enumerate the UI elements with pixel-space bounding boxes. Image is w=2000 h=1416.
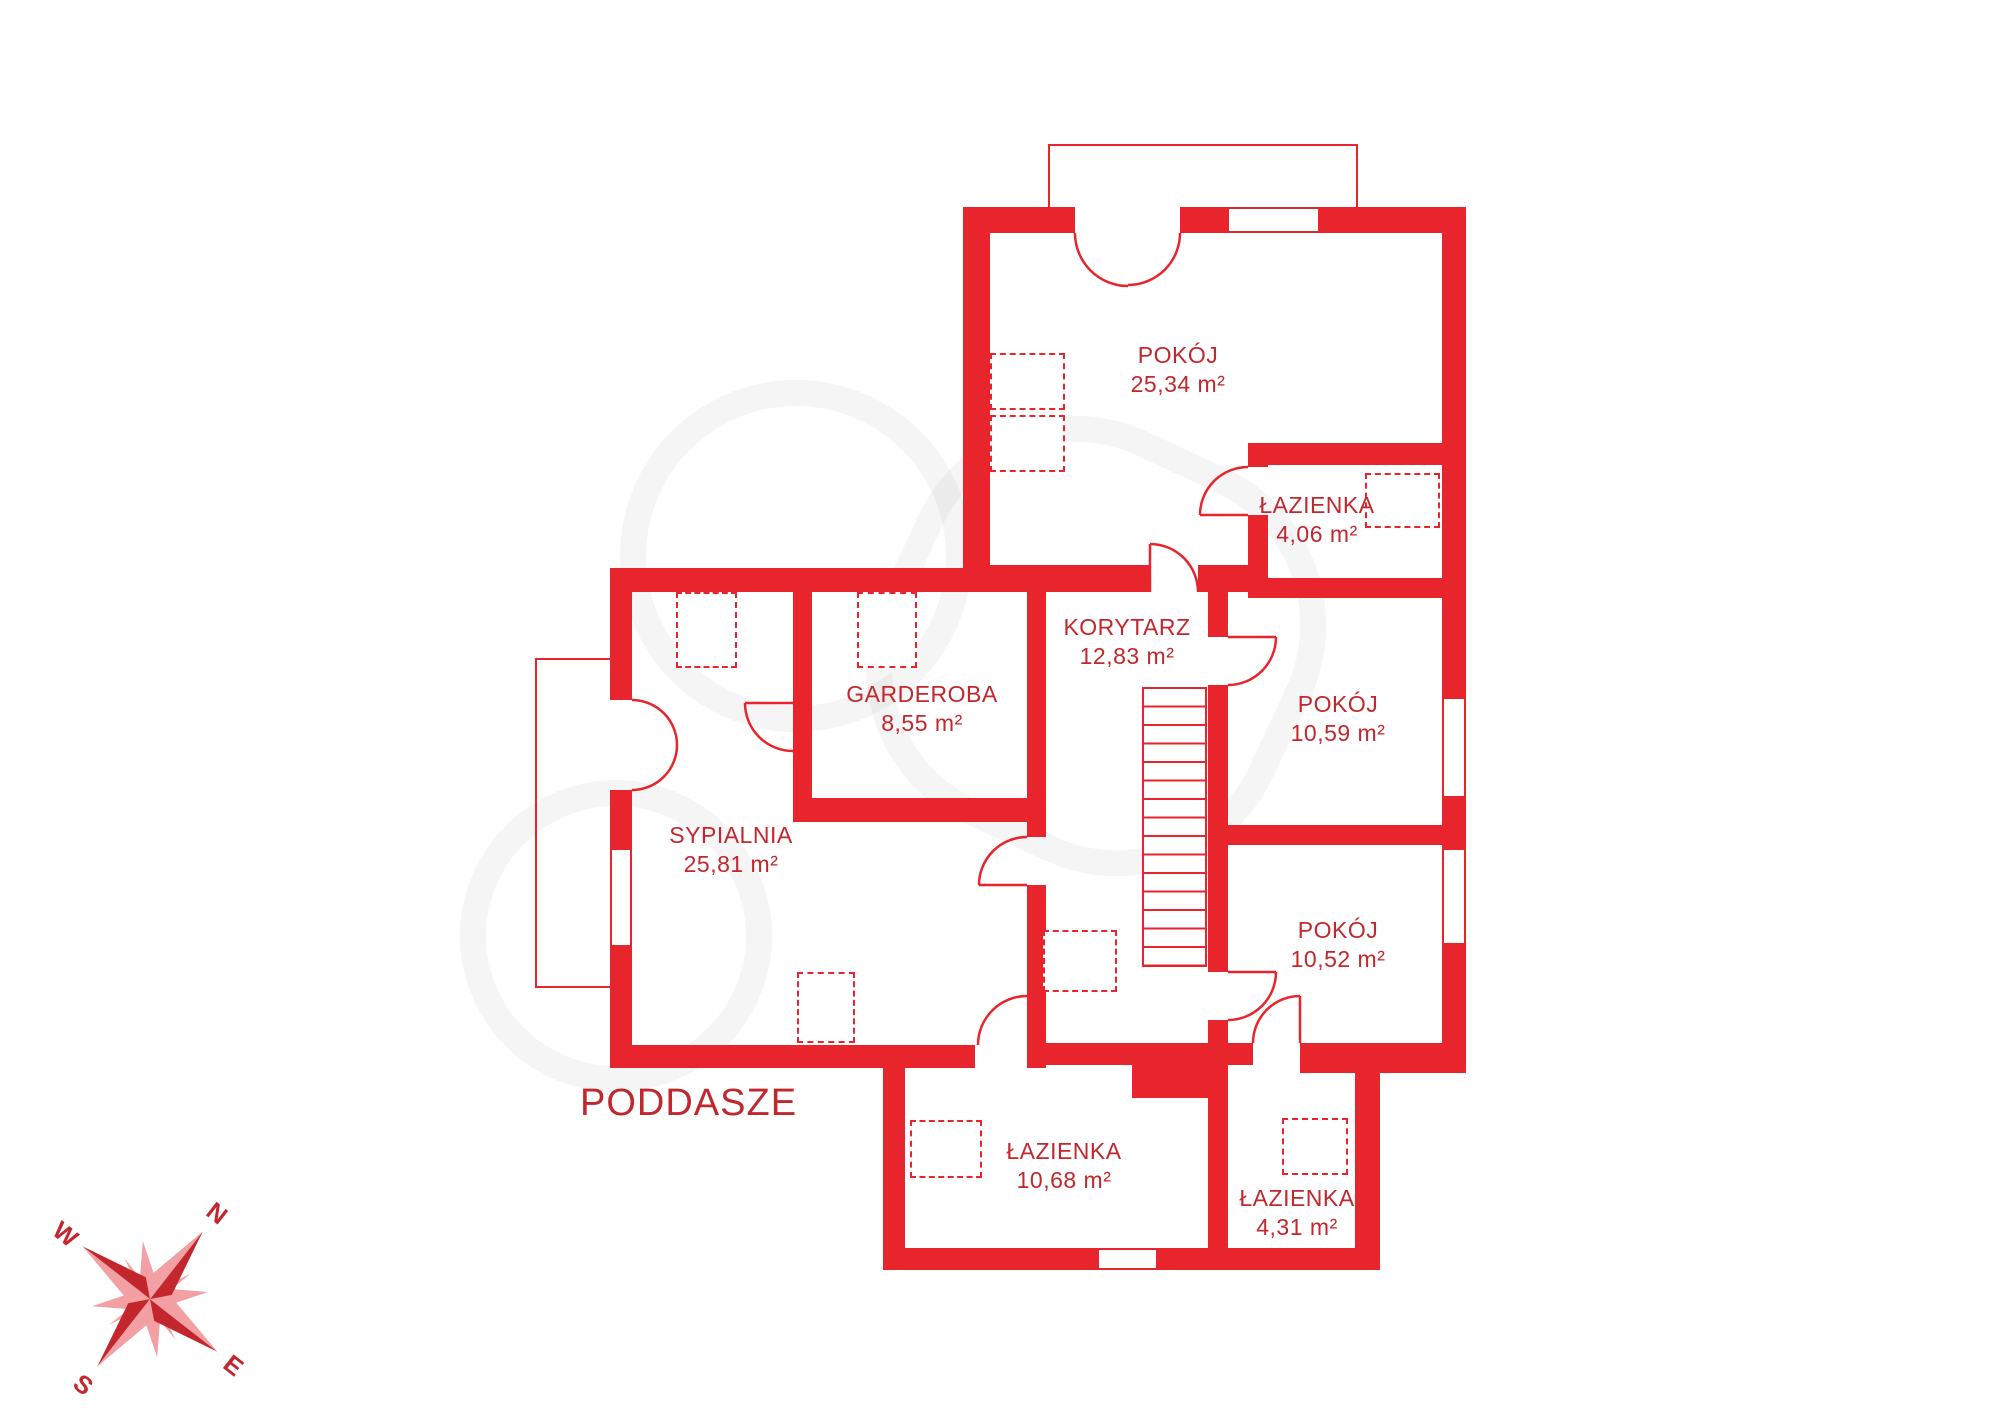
door-arc: [1253, 996, 1300, 1043]
room-label: POKÓJ 25,34 m²: [1048, 341, 1308, 399]
room-name: ŁAZIENKA: [1167, 1184, 1427, 1213]
compass-letter-e: E: [218, 1350, 248, 1382]
furniture-outline: [797, 972, 855, 1043]
room-name: SYPIALNIA: [601, 821, 861, 850]
wall: [1248, 578, 1442, 598]
room-name: POKÓJ: [1208, 916, 1468, 945]
room-area: 10,59 m²: [1208, 719, 1468, 748]
room-area: 8,55 m²: [792, 709, 1052, 738]
room-name: POKÓJ: [1208, 690, 1468, 719]
wall: [1442, 207, 1466, 697]
compass-letter-n: N: [201, 1197, 233, 1230]
wall: [610, 568, 632, 700]
room-area: 12,83 m²: [997, 642, 1257, 671]
wall: [1028, 1043, 1253, 1065]
room-area: 25,34 m²: [1048, 370, 1308, 399]
wall: [1180, 207, 1227, 233]
room-name: ŁAZIENKA: [1187, 491, 1447, 520]
window: [1227, 207, 1320, 233]
window: [1097, 1248, 1158, 1270]
room-label: POKÓJ 10,59 m²: [1208, 690, 1468, 748]
room-area: 10,68 m²: [934, 1166, 1194, 1195]
wall: [883, 1058, 905, 1270]
room-name: KORYTARZ: [997, 613, 1257, 642]
room-label: ŁAZIENKA 4,06 m²: [1187, 491, 1447, 549]
wall: [963, 207, 990, 592]
floor-plan: POKÓJ 25,34 m² ŁAZIENKA 4,06 m² KORYTARZ…: [0, 0, 2000, 1416]
room-name: GARDEROBA: [792, 680, 1052, 709]
room-area: 4,31 m²: [1167, 1213, 1427, 1242]
room-name: ŁAZIENKA: [934, 1137, 1194, 1166]
compass-letter-s: S: [68, 1369, 98, 1401]
furniture-outline: [1282, 1118, 1348, 1175]
wall: [1132, 1065, 1228, 1098]
door-arc: [632, 700, 677, 745]
wall: [1208, 1020, 1228, 1045]
door-arc: [1075, 233, 1128, 286]
wall: [1158, 1248, 1380, 1270]
wall: [1300, 1043, 1466, 1073]
room-label: ŁAZIENKA 10,68 m²: [934, 1137, 1194, 1195]
compass-letter-w: W: [47, 1216, 83, 1253]
floor-title: PODDASZE: [580, 1082, 797, 1125]
furniture-outline: [1043, 930, 1117, 992]
terrace-outline: [535, 658, 611, 988]
wall: [610, 568, 990, 592]
room-label: ŁAZIENKA 4,31 m²: [1167, 1184, 1427, 1242]
room-name: POKÓJ: [1048, 341, 1308, 370]
stairs: [1142, 687, 1207, 967]
room-area: 25,81 m²: [601, 850, 861, 879]
room-label: SYPIALNIA 25,81 m²: [601, 821, 861, 879]
door-arc: [1228, 972, 1276, 1020]
wall: [1442, 798, 1466, 848]
compass-rose-icon: N E S W: [35, 1182, 265, 1412]
wall: [883, 1248, 1097, 1270]
dormer-outline: [1048, 144, 1358, 209]
room-area: 10,52 m²: [1208, 945, 1468, 974]
wall: [990, 565, 1150, 592]
door-arc: [1128, 233, 1180, 285]
wall: [1228, 825, 1442, 845]
door-arc: [978, 996, 1027, 1045]
furniture-outline: [857, 592, 917, 668]
furniture-outline: [990, 415, 1065, 472]
room-label: KORYTARZ 12,83 m²: [997, 613, 1257, 671]
wall: [610, 1045, 975, 1068]
furniture-outline: [676, 592, 737, 668]
room-area: 4,06 m²: [1187, 520, 1447, 549]
wall: [793, 798, 1046, 822]
room-label: POKÓJ 10,52 m²: [1208, 916, 1468, 974]
wall: [1248, 443, 1442, 465]
room-label: GARDEROBA 8,55 m²: [792, 680, 1052, 738]
